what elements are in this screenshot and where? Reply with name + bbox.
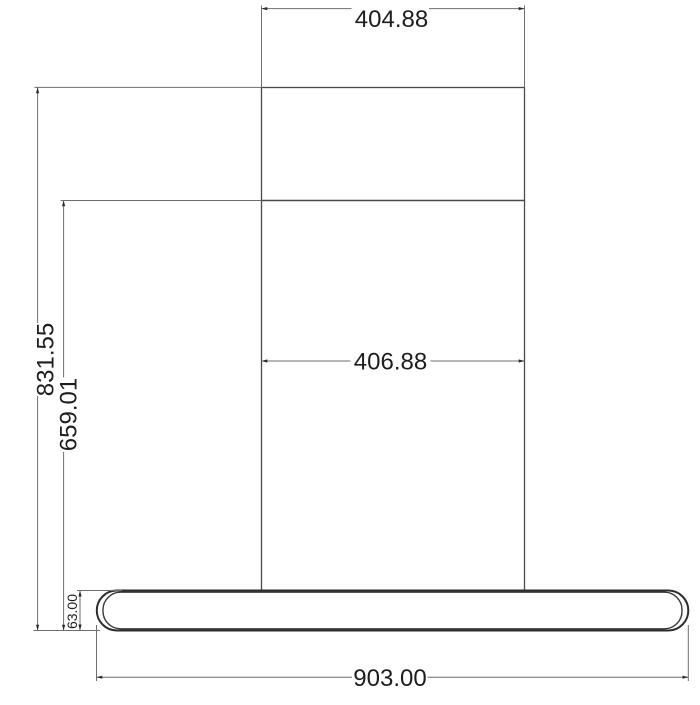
svg-text:659.01: 659.01 bbox=[56, 378, 83, 451]
svg-text:63.00: 63.00 bbox=[64, 594, 80, 629]
svg-text:406.88: 406.88 bbox=[354, 349, 427, 376]
svg-text:903.00: 903.00 bbox=[353, 665, 426, 692]
svg-text:404.88: 404.88 bbox=[355, 6, 428, 33]
